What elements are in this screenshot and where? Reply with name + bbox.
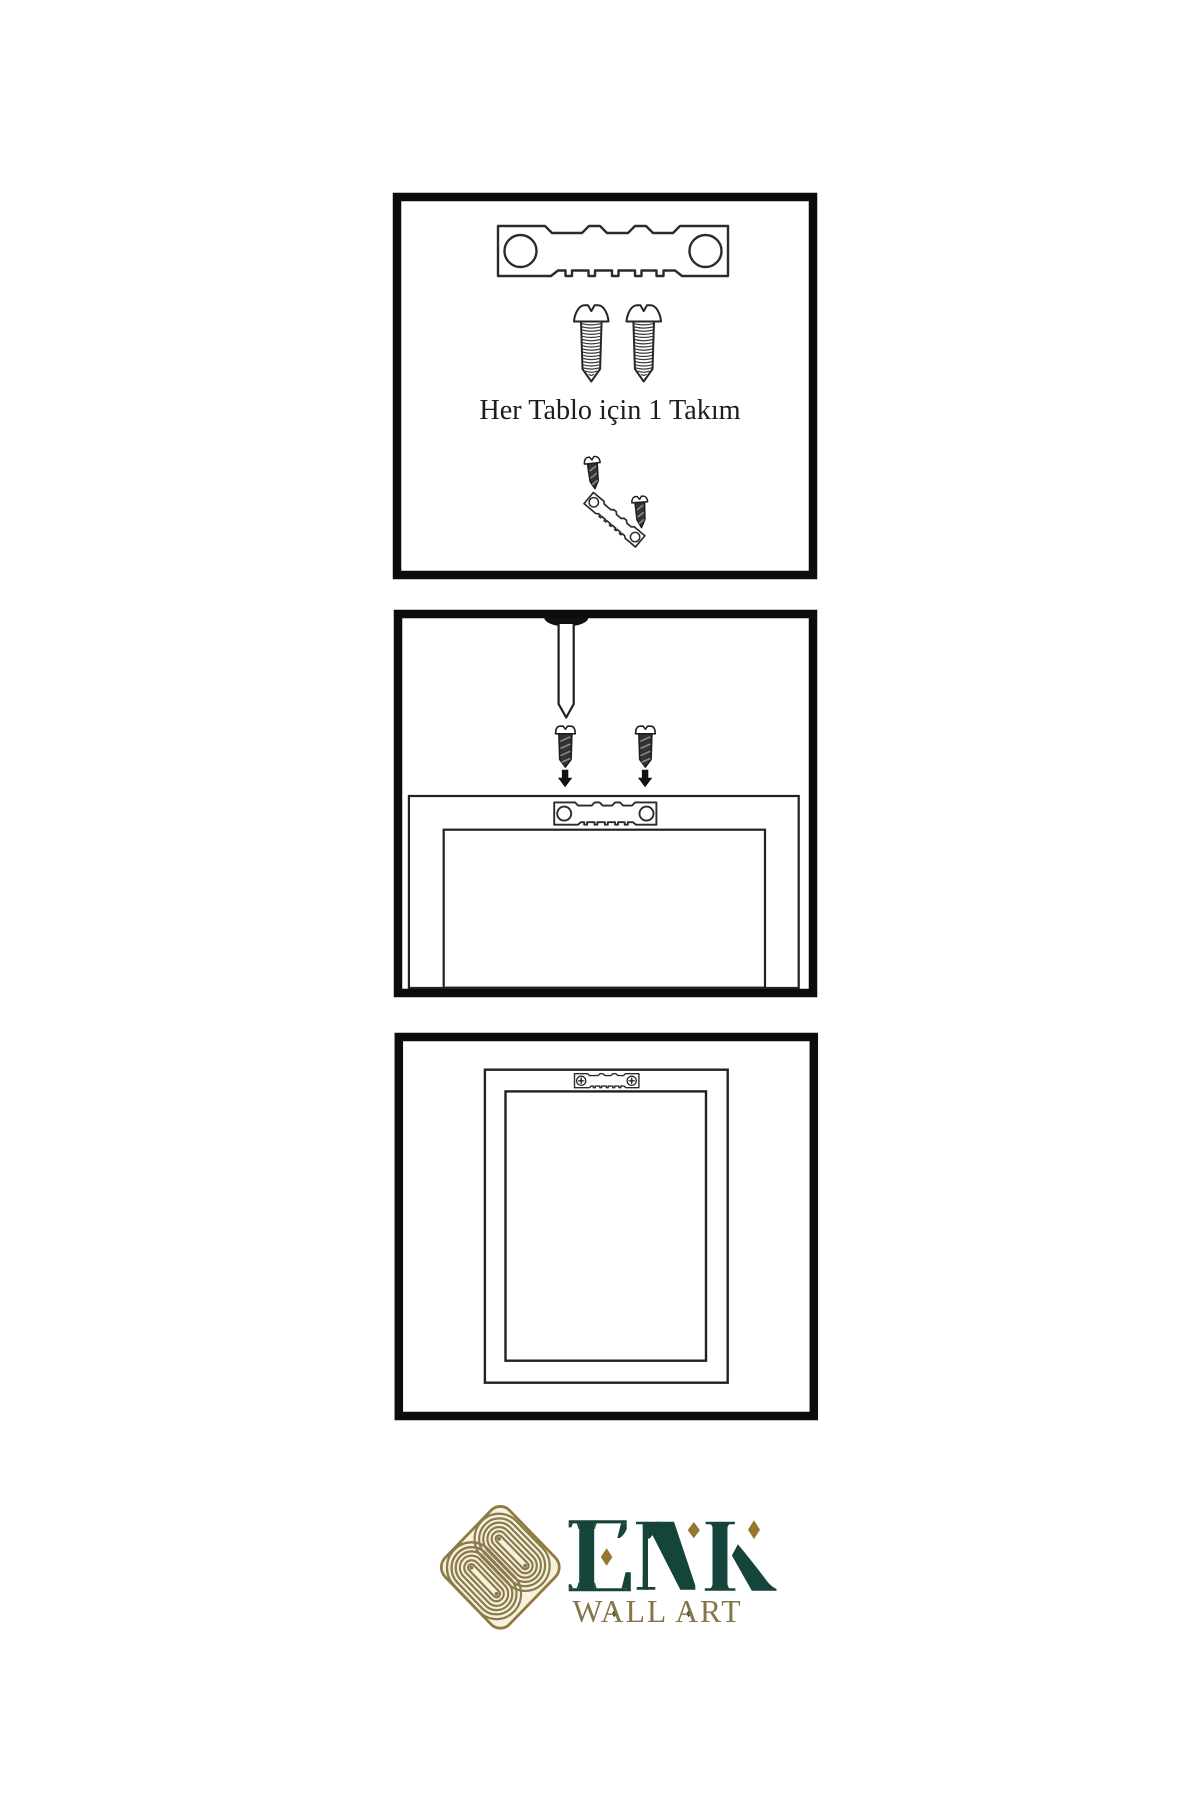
svg-text:Her Tablo için 1 Takım: Her Tablo için 1 Takım [479, 395, 740, 426]
svg-text:WALL ART: WALL ART [572, 1594, 742, 1629]
